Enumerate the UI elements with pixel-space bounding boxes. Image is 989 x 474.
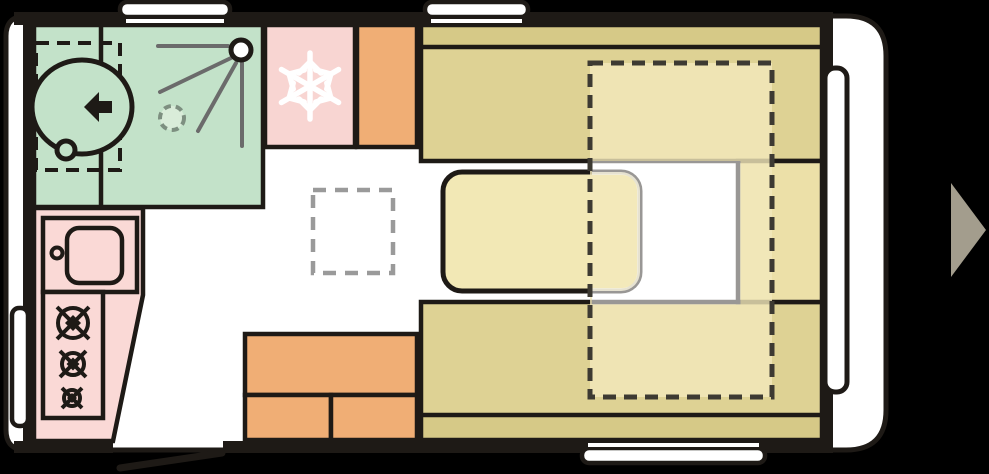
storage-chest-right	[331, 395, 417, 440]
faucet-icon	[52, 248, 63, 259]
bed-overlay-table-patch	[592, 172, 640, 291]
sink-icon	[67, 228, 122, 283]
storage-chest-large	[245, 334, 417, 395]
window-top-middle-strip	[431, 19, 522, 23]
floorplan-canvas	[0, 0, 989, 474]
window-top-middle	[425, 2, 528, 17]
shower-rose	[231, 40, 251, 60]
bed-overlay	[590, 63, 772, 397]
window-front-wall	[825, 68, 847, 392]
caravan-floorplan	[0, 0, 989, 474]
shower-drain-icon	[160, 106, 184, 130]
window-bottom	[582, 448, 765, 463]
top-cabinet	[357, 25, 417, 147]
window-left-wall	[12, 308, 28, 426]
window-top-left-strip	[126, 19, 224, 23]
bottom-bench-backrest	[421, 415, 822, 440]
burner-icon-medium	[60, 351, 86, 377]
window-top-left	[120, 2, 230, 17]
toilet-flush-knob	[57, 141, 75, 159]
toilet-icon	[32, 60, 132, 154]
window-bottom-strip	[588, 443, 759, 447]
top-bench-backrest	[421, 25, 822, 47]
burner-icon-small	[62, 388, 82, 408]
storage-chest-left	[245, 395, 331, 440]
